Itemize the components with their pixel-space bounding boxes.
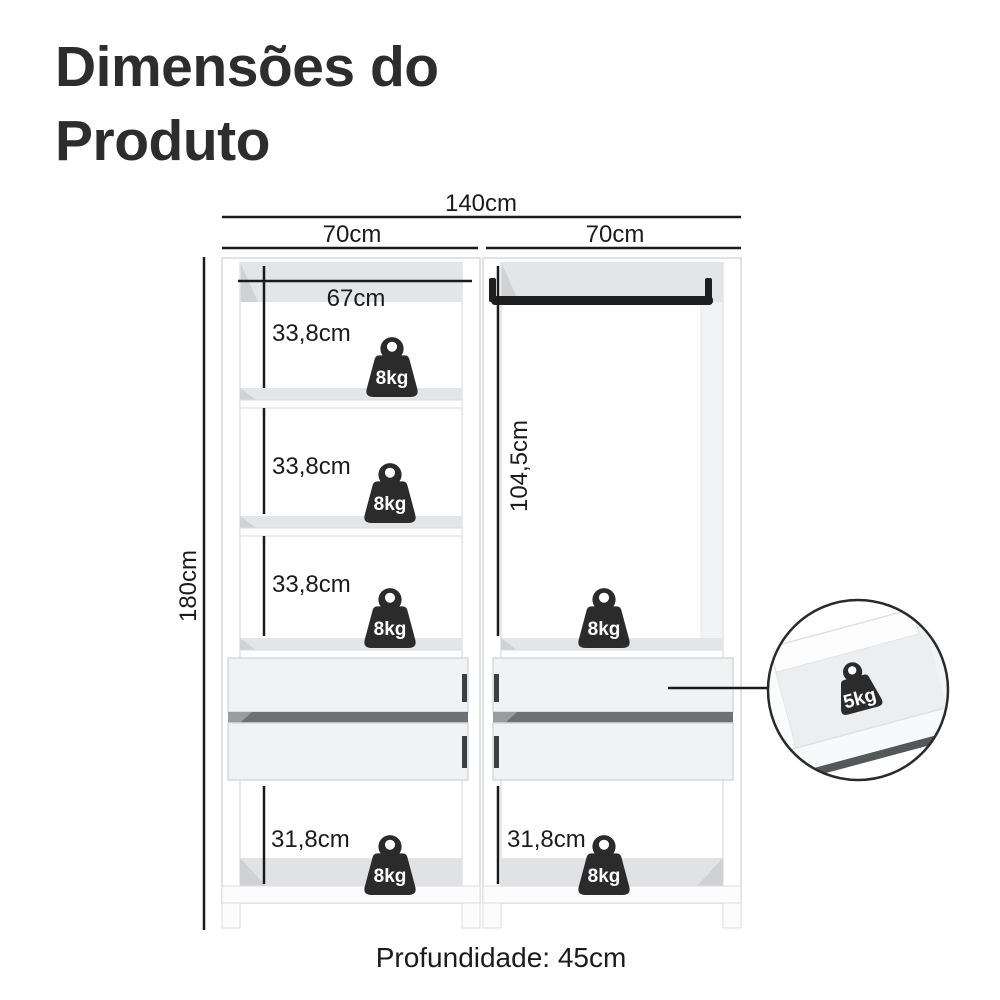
weight-label: 8kg bbox=[361, 494, 419, 516]
label-bottom-right: 31,8cm bbox=[507, 826, 586, 854]
weight-8kg-icon: 8kg bbox=[363, 336, 421, 400]
page-title: Dimensões do Produto bbox=[55, 30, 439, 178]
weight-label: 8kg bbox=[363, 368, 421, 390]
right-drawers bbox=[493, 658, 733, 780]
label-right-module-width: 70cm bbox=[586, 221, 645, 249]
label-total-height: 180cm bbox=[175, 550, 203, 622]
label-shelf-inner-width: 67cm bbox=[327, 285, 386, 313]
weight-8kg-icon: 8kg bbox=[361, 834, 419, 898]
weight-8kg-icon: 8kg bbox=[361, 462, 419, 526]
label-shelf-section-3: 33,8cm bbox=[272, 571, 351, 599]
page-title-line1: Dimensões do bbox=[55, 30, 439, 104]
weight-8kg-icon: 8kg bbox=[575, 587, 633, 651]
product-dimensions-diagram: 5kg Dimensões do Produto 140cm 70cm 70cm… bbox=[0, 0, 1000, 1000]
label-bottom-left: 31,8cm bbox=[271, 826, 350, 854]
page-title-line2: Produto bbox=[55, 104, 439, 178]
weight-8kg-icon: 8kg bbox=[575, 834, 633, 898]
label-shelf-section-1: 33,8cm bbox=[272, 320, 351, 348]
weight-label: 8kg bbox=[361, 866, 419, 888]
label-total-width: 140cm bbox=[445, 190, 517, 218]
weight-8kg-icon: 8kg bbox=[361, 587, 419, 651]
weight-label: 8kg bbox=[575, 619, 633, 641]
label-shelf-section-2: 33,8cm bbox=[272, 453, 351, 481]
depth-label: Profundidade: 45cm bbox=[376, 942, 627, 974]
weight-label: 8kg bbox=[575, 866, 633, 888]
left-module bbox=[222, 258, 480, 928]
label-left-module-width: 70cm bbox=[323, 221, 382, 249]
label-hanging-height: 104,5cm bbox=[506, 420, 534, 512]
weight-label: 8kg bbox=[361, 619, 419, 641]
left-drawers bbox=[228, 658, 468, 780]
drawer-detail-circle: 5kg bbox=[739, 593, 965, 793]
